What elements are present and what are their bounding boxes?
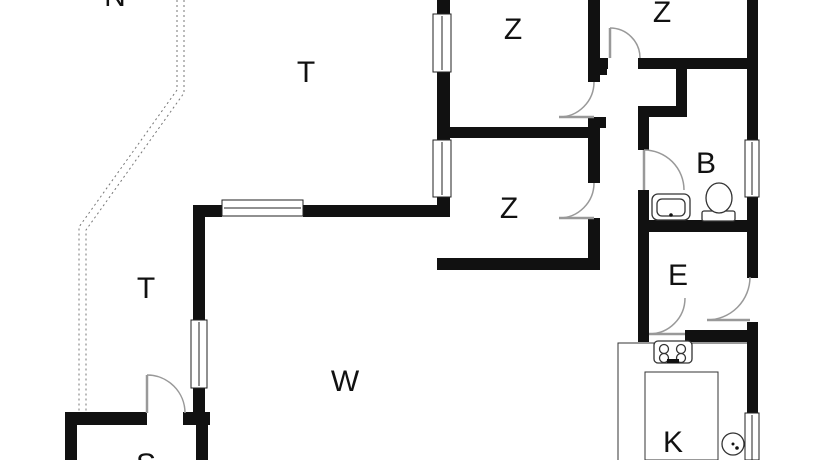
wall	[598, 117, 606, 128]
wall	[437, 258, 600, 270]
wall	[638, 190, 649, 330]
wall	[588, 218, 600, 270]
wall	[193, 388, 205, 413]
door-entry-to-living	[649, 298, 685, 334]
door-bedroom2	[559, 183, 594, 218]
door-bedroom1	[559, 82, 594, 117]
wall	[65, 412, 77, 460]
label-bedroom-1: Z	[504, 13, 522, 46]
wall	[437, 0, 450, 14]
bathroom-fixtures	[652, 183, 735, 221]
label-entry: E	[668, 259, 688, 292]
wall	[638, 330, 649, 342]
wall	[747, 322, 758, 413]
label-bathroom: B	[696, 147, 716, 180]
wall	[638, 220, 757, 232]
window-living-left	[191, 320, 207, 388]
window-living-top	[222, 200, 303, 216]
wall	[685, 330, 757, 342]
label-terrace-left: T	[137, 272, 155, 305]
wall	[196, 412, 208, 460]
floor-plan: Z Z Z B E W K T T S N	[0, 0, 840, 460]
door-entry-exterior	[707, 277, 750, 320]
terrace-boundary-inner	[86, 0, 184, 412]
window-bedroom1-left	[433, 14, 451, 72]
wall	[598, 58, 608, 69]
wall	[638, 106, 687, 117]
door-bathroom	[644, 150, 684, 190]
door-bedroom3	[610, 28, 640, 58]
windows	[191, 14, 759, 460]
toilet	[702, 183, 735, 221]
wall	[193, 217, 205, 320]
wall	[638, 117, 649, 150]
wall	[193, 205, 222, 217]
window-bedroom2-left	[433, 140, 451, 197]
wall	[747, 0, 758, 140]
walls	[65, 0, 758, 460]
label-bedroom-2: Z	[500, 192, 518, 225]
label-kitchen: K	[663, 426, 683, 459]
label-bedroom-3: Z	[653, 0, 671, 29]
floor-plan-drawing: Z Z Z B E W K T T S N	[0, 0, 840, 460]
label-terrace-top: T	[297, 56, 315, 89]
window-kitchen-right	[745, 413, 759, 460]
wall	[638, 58, 757, 69]
terrace-boundary-outer	[79, 0, 177, 412]
kitchen-sink	[722, 433, 744, 455]
door-living-southwest	[147, 375, 185, 413]
label-partial-top: N	[104, 0, 126, 13]
window-bathroom-right	[745, 140, 759, 197]
stove	[654, 341, 692, 363]
wall	[303, 205, 445, 217]
label-room-partial-bottom: S	[136, 448, 156, 460]
bathroom-sink	[652, 194, 690, 220]
label-living-room: W	[331, 365, 360, 398]
wall	[65, 412, 147, 425]
wall	[437, 127, 600, 138]
wall	[747, 197, 758, 278]
